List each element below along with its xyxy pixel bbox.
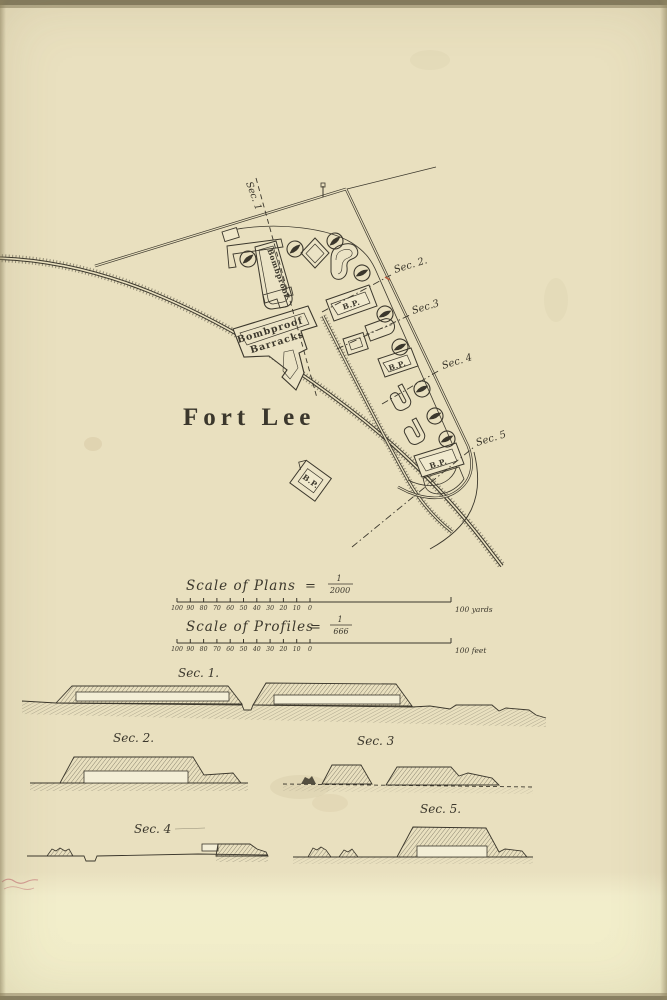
cannon-icon — [351, 262, 373, 284]
gallery-chamber — [417, 846, 487, 857]
profile-sec-2: Sec. 2. — [30, 731, 248, 791]
magazine-diamond — [301, 238, 329, 268]
profile-sec-5-label: Sec. 5. — [420, 802, 461, 816]
equals-sign: = — [305, 579, 316, 594]
tick-label: 30 — [266, 646, 274, 653]
tick-label: 20 — [278, 605, 287, 612]
tick-label: 30 — [266, 605, 274, 612]
profile-sec-2-label: Sec. 2. — [113, 731, 154, 745]
equals-sign: = — [310, 620, 321, 635]
section-line-4-label: Sec. 4 — [441, 352, 474, 372]
tick-label: 10 — [293, 646, 301, 653]
tick-label: 60 — [226, 605, 234, 612]
fraction-denominator: 2000 — [329, 586, 350, 595]
profile-sec-4: Sec. 4 — [27, 822, 268, 862]
fraction-numerator: 1 — [337, 615, 342, 624]
gallery-chamber — [76, 692, 229, 701]
gallery-chamber — [274, 695, 400, 704]
tick-label: 80 — [200, 605, 208, 612]
bombproof-bp-3: B.P. — [414, 443, 464, 494]
scan-edge-left — [0, 0, 6, 1000]
fort-lee-plan-drawing: Bombproof B.P. B.P. B.P. — [0, 0, 667, 1000]
wall-guardhouse — [222, 228, 239, 242]
section-line-3-label: Sec.3 — [411, 298, 441, 317]
tick-label: 40 — [252, 605, 261, 612]
section-line-5-label: Sec. 5 — [475, 429, 508, 449]
tick-label: 100 — [171, 605, 183, 612]
traverse-hook-2 — [401, 418, 427, 447]
red-pencil-scribble — [2, 879, 38, 889]
tick-label: 80 — [200, 646, 208, 653]
tick-label: 10 — [293, 605, 301, 612]
scale-profiles-title: Scale of Profiles — [186, 619, 314, 635]
fort-name-title: Fort Lee — [183, 404, 315, 431]
scan-edge-right — [660, 0, 667, 1000]
tick-label: 40 — [252, 646, 261, 653]
tick-label: 70 — [213, 605, 221, 612]
cannon-icon — [411, 378, 433, 400]
plans-ruler — [177, 597, 451, 602]
tick-label: 90 — [186, 646, 194, 653]
profiles-ruler — [177, 638, 451, 643]
tick-label: 90 — [186, 605, 194, 612]
tick-label: 100 — [171, 646, 183, 653]
tick-label: 0 — [308, 646, 312, 653]
scan-edge-bottom — [0, 993, 667, 1000]
tick-label: 70 — [213, 646, 221, 653]
profiles-end-label: 100 feet — [455, 646, 487, 655]
profile-sec-3-label: Sec. 3 — [357, 734, 395, 748]
section-line-2-label: Sec. 2. — [393, 255, 429, 276]
cannon-icon — [284, 238, 307, 261]
plans-end-label: 100 yards — [455, 605, 493, 614]
profile-sec-4-label: Sec. 4 — [134, 822, 171, 836]
fraction-denominator: 666 — [333, 627, 348, 636]
gallery-chamber — [84, 771, 188, 783]
profile-sec-1-label: Sec. 1. — [178, 666, 219, 680]
scale-plans-title: Scale of Plans — [186, 578, 296, 594]
fraction-numerator: 1 — [336, 574, 341, 583]
tick-label: 0 — [308, 605, 312, 612]
scan-edge-top — [0, 0, 667, 8]
tick-label: 50 — [240, 646, 248, 653]
gallery-chamber — [202, 844, 218, 851]
tick-label: 20 — [278, 646, 287, 653]
bombproof-bp-2: B.P. — [378, 348, 418, 377]
tick-label: 50 — [240, 605, 248, 612]
scale-of-profiles: Scale of Profiles = 1 666 100 90 80 70 6… — [171, 615, 487, 655]
tick-label: 60 — [226, 646, 234, 653]
bombproof-bp-1: B.P. — [326, 285, 377, 321]
detached-bombproof: B.P. — [286, 457, 332, 501]
bombproof-building: Bombproof — [255, 241, 292, 309]
profile-sec-1: Sec. 1. — [22, 666, 546, 727]
scale-of-plans: Scale of Plans = 1 2000 100 90 80 70 60 … — [171, 574, 493, 614]
apex-road-line — [347, 167, 436, 189]
cannon-icon — [424, 405, 446, 427]
